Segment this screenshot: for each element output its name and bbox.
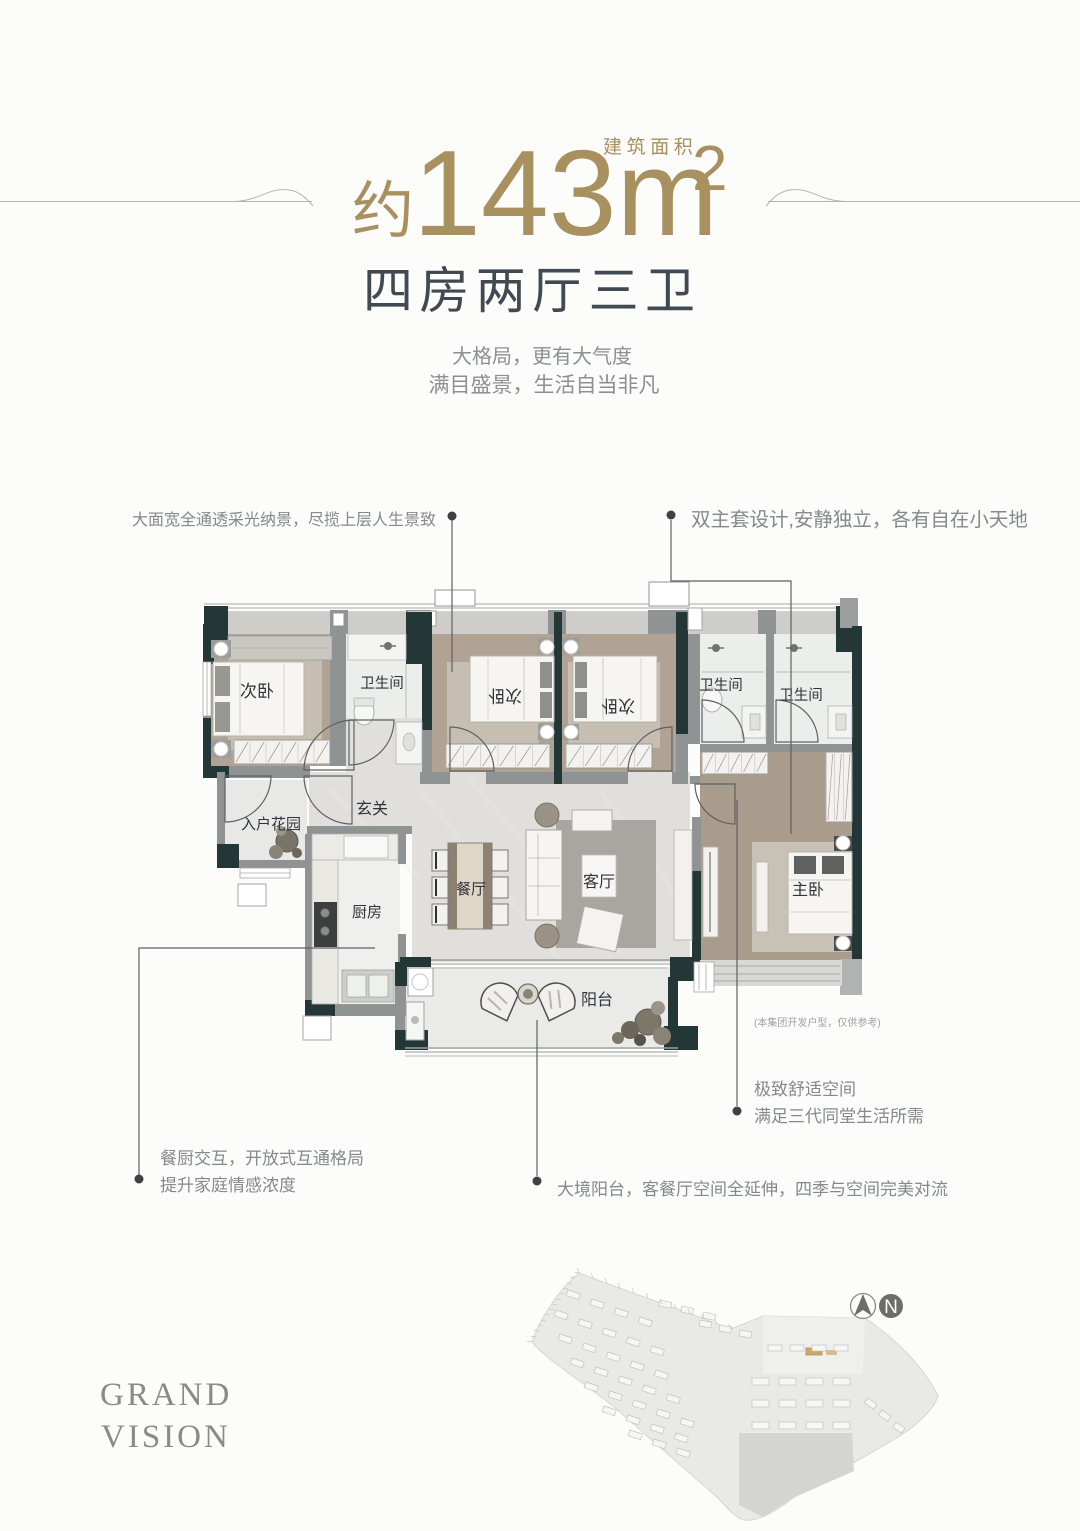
svg-text:卫生间: 卫生间 bbox=[360, 675, 404, 692]
svg-text:客厅: 客厅 bbox=[583, 873, 615, 891]
svg-text:玄关: 玄关 bbox=[356, 800, 388, 818]
svg-text:次卧: 次卧 bbox=[601, 696, 635, 715]
svg-text:餐厅: 餐厅 bbox=[456, 881, 486, 898]
svg-text:N: N bbox=[884, 1297, 898, 1318]
svg-text:卫生间: 卫生间 bbox=[779, 687, 823, 704]
svg-text:次卧: 次卧 bbox=[488, 686, 522, 705]
svg-text:入户花园: 入户花园 bbox=[241, 816, 301, 833]
svg-text:阳台: 阳台 bbox=[581, 991, 613, 1009]
svg-text:主卧: 主卧 bbox=[792, 881, 824, 899]
svg-text:次卧: 次卧 bbox=[240, 682, 274, 701]
svg-text:卫生间: 卫生间 bbox=[699, 677, 743, 694]
svg-text:厨房: 厨房 bbox=[352, 904, 382, 921]
